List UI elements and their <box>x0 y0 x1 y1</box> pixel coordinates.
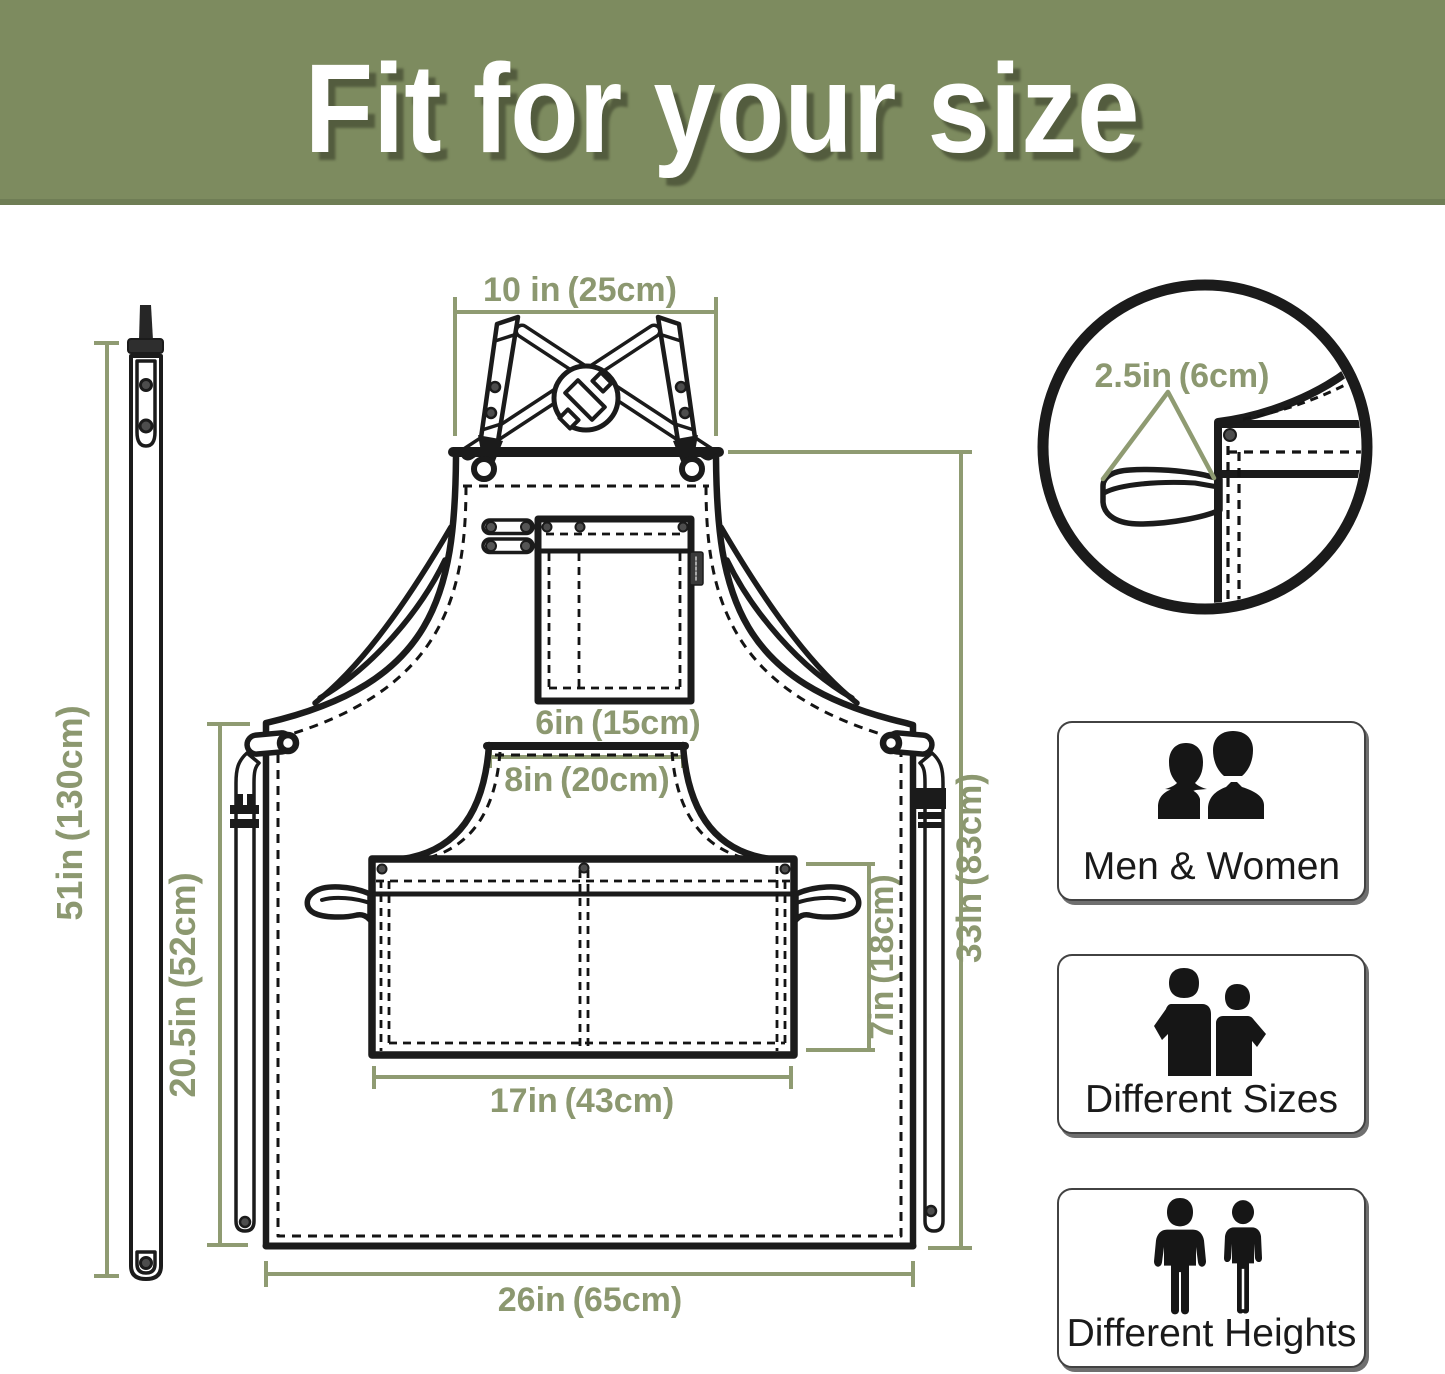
svg-text:6in (15cm): 6in (15cm) <box>535 704 701 742</box>
svg-text:20.5in (52cm): 20.5in (52cm) <box>162 872 203 1097</box>
svg-text:7in (18cm): 7in (18cm) <box>863 874 901 1040</box>
svg-text:51in (130cm): 51in (130cm) <box>49 705 90 920</box>
svg-text:26in (65cm): 26in (65cm) <box>498 1281 682 1319</box>
svg-text:33in (83cm): 33in (83cm) <box>950 773 989 963</box>
svg-text:17in (43cm): 17in (43cm) <box>490 1082 674 1120</box>
svg-text:8in (20cm): 8in (20cm) <box>504 761 670 799</box>
svg-text:2.5in (6cm): 2.5in (6cm) <box>1095 357 1270 395</box>
svg-text:10 in (25cm): 10 in (25cm) <box>483 271 677 309</box>
